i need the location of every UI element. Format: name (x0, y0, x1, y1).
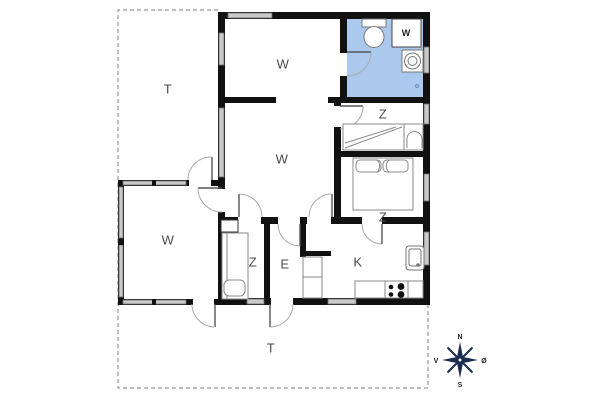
wall (340, 217, 362, 224)
compass-label-north: N (457, 334, 462, 341)
window (328, 299, 356, 304)
room-label-bedroom-small: Z (249, 255, 257, 270)
single-bed (221, 220, 248, 299)
compass-label-south: S (458, 382, 463, 389)
kitchen-sink (406, 246, 424, 270)
door-entry-terrace (270, 304, 293, 327)
floor-plan-svg: N S V Ø (0, 0, 600, 400)
compass-rose: N S V Ø (434, 334, 488, 389)
wall (382, 217, 423, 224)
window (219, 33, 224, 65)
compass-label-west: V (434, 358, 439, 365)
window (247, 299, 264, 304)
door-conservatory-terrace-south (192, 304, 215, 327)
wall (334, 127, 341, 223)
window (424, 174, 429, 201)
floor-plan: N S V Ø T W W W Z Z Z E K T W (0, 0, 600, 400)
wall (300, 251, 331, 256)
window (119, 245, 123, 297)
room-label-conservatory: W (162, 233, 175, 248)
wall (222, 97, 276, 103)
room-label-terrace-bottom: T (267, 341, 275, 356)
window-post (152, 180, 156, 186)
wall (340, 151, 423, 157)
room-label-bedroom-top: Z (379, 107, 387, 122)
door-bedroom-small (239, 194, 262, 217)
wall (347, 97, 423, 103)
door-conservatory-terrace (188, 157, 212, 180)
window (424, 232, 429, 265)
door-bedroom-middle (362, 224, 382, 244)
wardrobe (303, 257, 322, 298)
double-bed (353, 158, 413, 210)
wall (293, 298, 423, 305)
bunk-bed (343, 124, 423, 150)
wall (261, 217, 278, 224)
room-label-bedroom-middle: Z (379, 210, 387, 225)
window (219, 108, 224, 177)
wall (211, 180, 222, 186)
room-label-terrace-left: T (164, 82, 172, 97)
door-entry (278, 224, 300, 246)
toilet (362, 19, 386, 48)
wall (334, 97, 341, 106)
window-post (118, 240, 124, 245)
wall (331, 217, 340, 224)
door-kitchen (309, 194, 332, 217)
wall (264, 224, 270, 298)
window (228, 13, 272, 18)
room-label-living-main: W (276, 152, 289, 167)
window (424, 104, 429, 124)
window-post (152, 299, 156, 305)
door-conservatory-living (198, 188, 222, 212)
room-label-entry: E (280, 257, 289, 272)
compass-center (458, 358, 462, 362)
window (424, 47, 429, 73)
washing-machine-label: W (402, 28, 411, 38)
wall (340, 76, 347, 100)
wall (300, 217, 307, 224)
window (119, 187, 123, 238)
wall (340, 19, 347, 53)
bathroom-sink (402, 50, 423, 72)
room-label-living-top: W (277, 57, 290, 72)
room-label-kitchen: K (353, 255, 362, 270)
compass-label-east: Ø (481, 358, 487, 365)
